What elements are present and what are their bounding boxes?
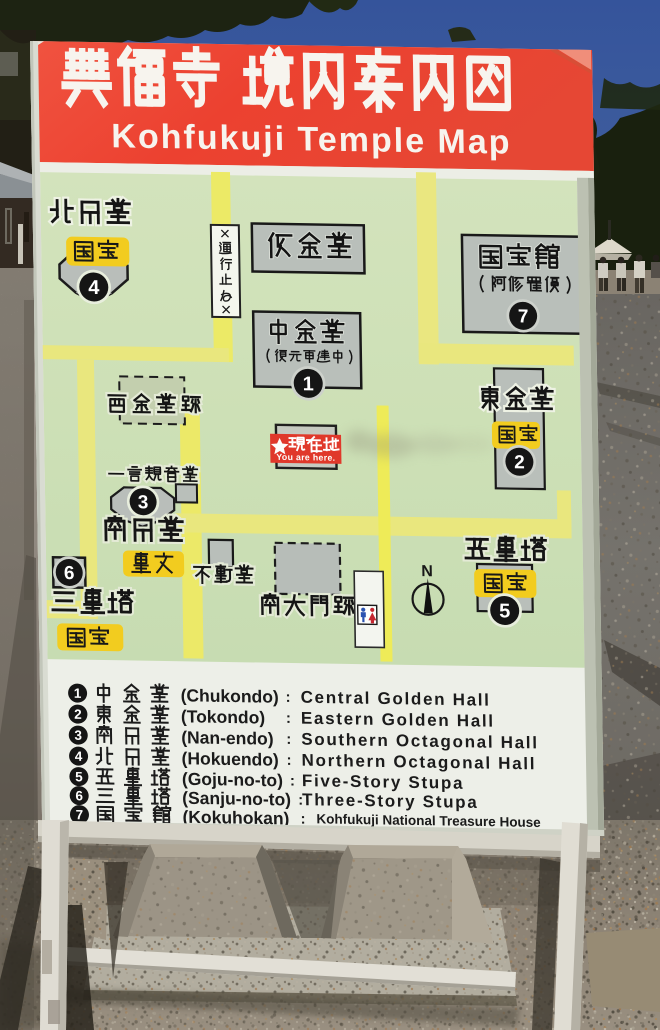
svg-text:3: 3 [138, 492, 149, 513]
svg-text:1: 1 [74, 686, 82, 701]
svg-text:7: 7 [518, 306, 529, 327]
svg-text:3: 3 [74, 728, 82, 743]
svg-text::: : [286, 752, 291, 769]
svg-text:1: 1 [303, 373, 314, 395]
svg-text:6: 6 [64, 563, 75, 584]
svg-text:2: 2 [74, 707, 82, 722]
svg-text::: : [285, 689, 290, 706]
svg-text:Southern Octagonal Hall: Southern Octagonal Hall [301, 730, 539, 753]
svg-text:4: 4 [88, 277, 100, 299]
svg-text:5: 5 [75, 769, 83, 784]
svg-text:(Hokuendo): (Hokuendo) [181, 748, 279, 770]
svg-text:Five-Story Stupa: Five-Story Stupa [302, 771, 465, 793]
svg-text:7: 7 [76, 807, 84, 822]
svg-text:You are here.: You are here. [276, 452, 335, 463]
svg-text:6: 6 [75, 788, 83, 803]
svg-text:4: 4 [75, 749, 83, 764]
svg-text:5: 5 [499, 600, 510, 622]
svg-text:(Nan-endo): (Nan-endo) [181, 727, 274, 748]
svg-text:Northern Octagonal Hall: Northern Octagonal Hall [301, 751, 536, 774]
svg-text:(Tokondo): (Tokondo) [181, 706, 266, 727]
svg-text::: : [286, 731, 291, 748]
svg-text:(Chukondo): (Chukondo) [180, 685, 278, 707]
svg-text:Three-Story Stupa: Three-Story Stupa [302, 790, 479, 812]
svg-text:N: N [421, 563, 433, 580]
svg-text::: : [286, 710, 291, 727]
svg-text:Central Golden Hall: Central Golden Hall [300, 688, 490, 710]
svg-text:Kohfukuji Temple Map: Kohfukuji Temple Map [111, 117, 512, 161]
svg-text::: : [290, 772, 295, 789]
svg-text:2: 2 [514, 452, 525, 473]
svg-text:Eastern Golden Hall: Eastern Golden Hall [301, 709, 495, 731]
